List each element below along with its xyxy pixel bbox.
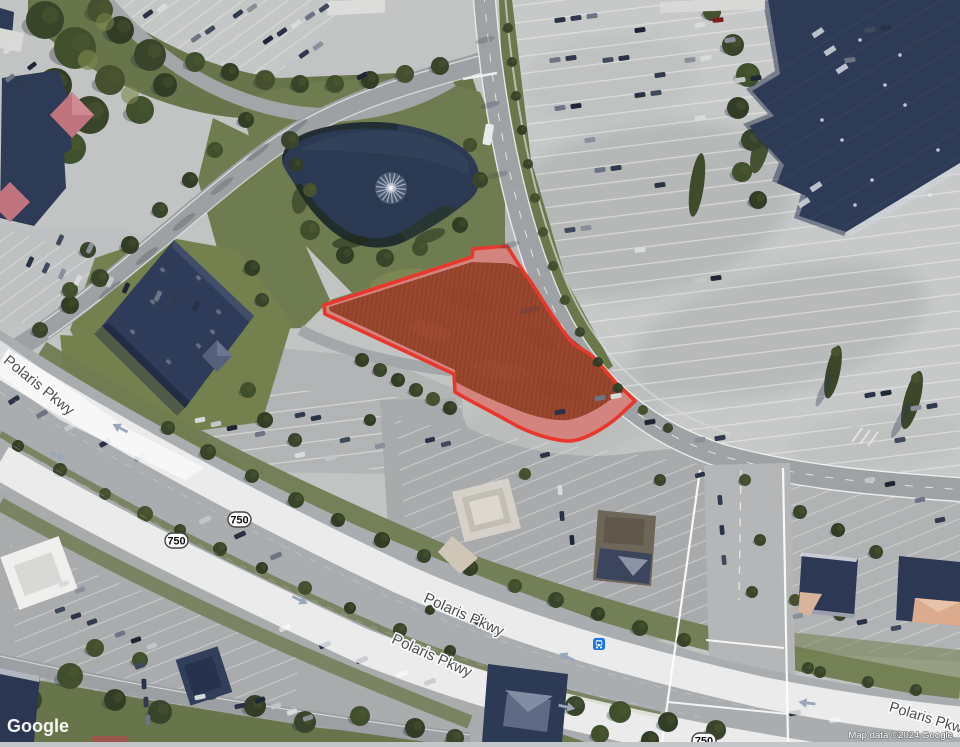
svg-text:750: 750 — [230, 515, 248, 527]
svg-text:Map data ©2024 Google: Map data ©2024 Google — [848, 730, 953, 741]
svg-text:Google: Google — [7, 716, 69, 736]
svg-text:750: 750 — [695, 736, 713, 743]
svg-text:750: 750 — [167, 536, 185, 548]
